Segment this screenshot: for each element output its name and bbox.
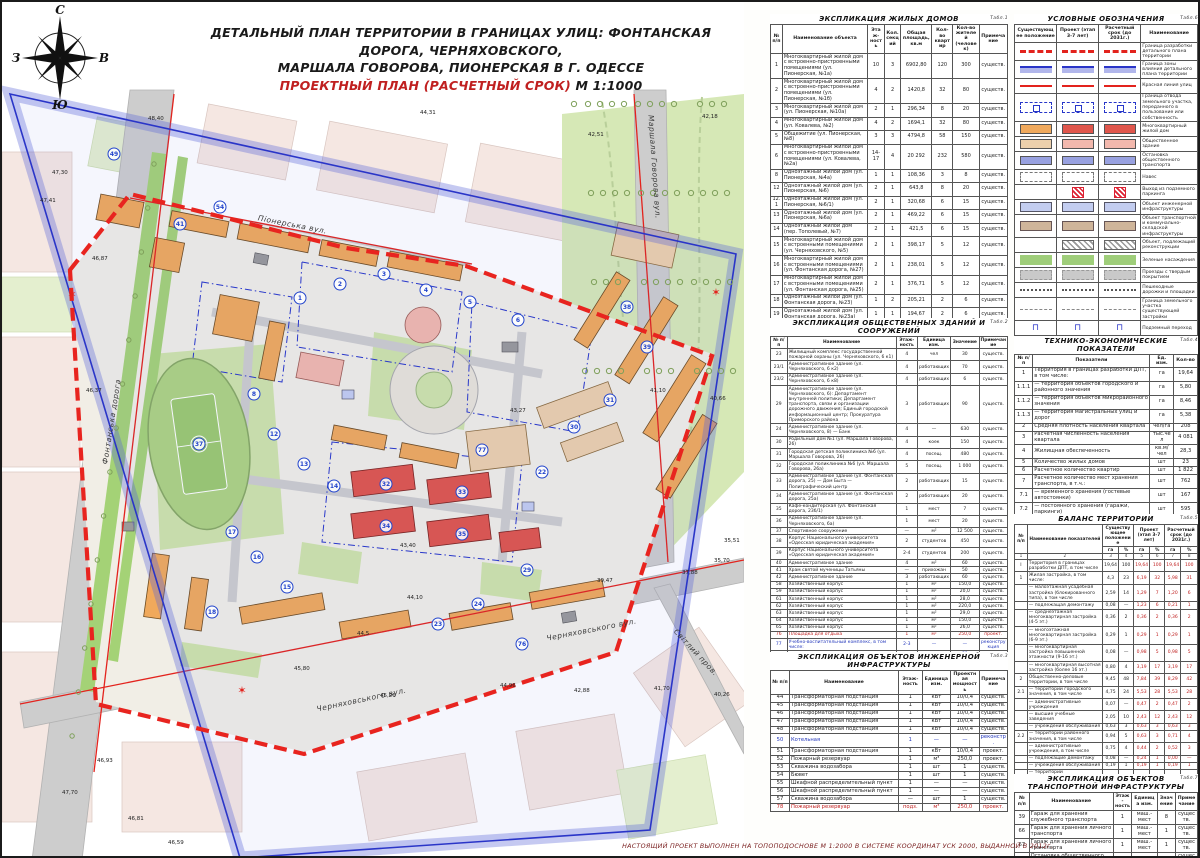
column-header: Наименование [1029, 793, 1113, 811]
legend-swatch-cell [1015, 215, 1057, 238]
table-cell: 3 [1119, 723, 1134, 730]
table-cell: 5 [1181, 644, 1198, 662]
table-cell: 3 [1181, 743, 1198, 755]
table-cell: 1 [898, 702, 922, 710]
table-cell: существ. [979, 275, 1007, 294]
table-cell: 48 [1119, 674, 1134, 686]
table-cell: 643,8 [901, 183, 932, 197]
table-cell: подз. [898, 804, 922, 812]
svg-text:В: В [98, 51, 109, 65]
table-cell: существ. [979, 726, 1007, 734]
table-cell: чел [917, 349, 950, 361]
table-cell: м² [917, 610, 950, 617]
table-cell: Многоквартирный жилой дом с встроенными … [782, 275, 867, 294]
legend-item-name: Зеленые насаждения [1141, 253, 1198, 268]
table-cell: Скважина водозабора [789, 796, 898, 804]
legend-item-name: Граница земельного участка существующей … [1141, 298, 1198, 321]
table-cell: 24 [1119, 686, 1134, 698]
table-cell: 1 [884, 210, 901, 224]
table-cell: Одноэтажный жилой дом (ул. Пионерская, №… [782, 196, 867, 210]
legend-item-name: Проезды с твердым покрытием [1141, 268, 1198, 283]
building-number-label: 39 [643, 344, 651, 351]
table-cell: 28,0 [951, 596, 979, 603]
table-cell: существ. [979, 196, 1007, 210]
table-cell: проект. [979, 631, 1007, 638]
table-cell: 32 [771, 461, 788, 473]
lr-swatch-icon [1104, 85, 1136, 87]
legend-swatch-cell [1099, 170, 1141, 185]
table-cell: Трансформаторная подстанция [789, 710, 898, 718]
table-cell: 8,46 [1174, 395, 1198, 409]
table-cell: маш.-мест [1132, 811, 1158, 825]
table-cell: Городская детская поликлиника №6 (ул. Ма… [787, 449, 896, 461]
table-cell: 37 [771, 528, 788, 535]
table-cell: 0,52 [1165, 743, 1181, 755]
table-cell: га [1150, 381, 1174, 395]
table-cell: 45 [771, 702, 790, 710]
building-number-label: 23 [434, 621, 442, 628]
legend-item-name: Подземный переход [1141, 321, 1198, 336]
table-cell: 5,38 [1174, 409, 1198, 423]
table-tag: Табл.5 [1180, 516, 1198, 521]
legend-column-header: Расчетный срок (до 2031г.) [1099, 25, 1141, 43]
elevation-label: 42,51 [588, 132, 604, 138]
table-cell: 10/0,4 [951, 702, 979, 710]
table-cell: 10/0,4 [951, 748, 979, 756]
table-cell: 4 [868, 117, 885, 131]
project-note: НАСТОЯЩИЙ ПРОЕКТ ВЫПОЛНЕН НА ТОПОПОДОСНО… [550, 843, 1125, 850]
svg-text:✶: ✶ [237, 684, 246, 697]
table-cell: 53 [771, 764, 790, 772]
table-cell: 1420,8 [901, 79, 932, 104]
table-cell: 15 [953, 210, 979, 224]
table-cell: 1 [898, 718, 922, 726]
column-header: № п/п [1015, 355, 1033, 368]
table-cell: 12 [953, 237, 979, 256]
legend-swatch-cell [1099, 268, 1141, 283]
table-cell: 1 [1113, 811, 1131, 825]
table-cell: 1 [898, 734, 922, 748]
table-cell: Трансформаторная подстанция [789, 702, 898, 710]
table-cell: Количество жилых домов [1033, 459, 1150, 467]
table-cell: 12 [1150, 711, 1165, 723]
table-cell: 2 [896, 535, 917, 547]
building-number-label: 34 [382, 523, 390, 530]
column-header: Примечание [1176, 793, 1198, 811]
table-cell: 1 [1157, 825, 1175, 839]
table-cell: 0,19 [1102, 762, 1118, 769]
table-cell: Территория в границах разработки ДПТ, в … [1027, 560, 1102, 572]
table-cell: Административное здание [787, 560, 896, 567]
table-cell: 68 [1015, 853, 1030, 858]
legend-swatch-cell [1057, 43, 1099, 61]
table-cell: га [1150, 395, 1174, 409]
table-cell: Одноэтажный жилой дом (пер. Тополевый, №… [782, 223, 867, 237]
table-cell: 0,08 [1102, 644, 1118, 662]
table-cell: 4794,8 [901, 131, 932, 145]
legend-item-name: Красная линия улиц [1141, 78, 1198, 93]
table-cell: 0,21 [1165, 602, 1181, 609]
table-cell: — территория магистральных улиц и дорог [1033, 409, 1150, 423]
table-cell: 0,36 [1102, 609, 1118, 627]
table-cell: 3 [868, 131, 885, 145]
legend-swatch-cell [1099, 78, 1141, 93]
legend-swatch-cell [1015, 283, 1057, 298]
table-cell: 6 [953, 294, 979, 308]
table-cell: 2 [884, 294, 901, 308]
table-cell: 2 [1181, 699, 1198, 711]
table-cell: 232 [932, 144, 953, 169]
table-cell: существ. [979, 610, 1007, 617]
table-cell: 1 [884, 183, 901, 197]
table-cell: 60 [951, 574, 979, 581]
legend-swatch-cell [1057, 185, 1099, 200]
column-header: № п/п [771, 25, 783, 54]
table-cell: — территория объектов микрорайонного зна… [1033, 395, 1150, 409]
legend-swatch-cell [1015, 321, 1057, 336]
table-cell: 2 [868, 256, 885, 275]
table-cell: 1 [898, 726, 922, 734]
table-cell: — учреждения обслуживания [1027, 762, 1102, 769]
table-cell: 14-17 [868, 144, 885, 169]
table-cell: маш.-мест [1132, 839, 1158, 853]
table-cell: существ. [979, 588, 1007, 595]
legend-swatch-cell [1015, 200, 1057, 215]
column-header: Единица изм. [917, 337, 950, 349]
legend-swatch-cell [1099, 283, 1141, 298]
table-cell: 6 [932, 210, 953, 224]
legend-swatch-cell [1099, 238, 1141, 253]
table-cell: существ. [979, 349, 1007, 361]
column-subheader: % [1150, 547, 1165, 554]
table-cell: 20,0 [951, 588, 979, 595]
table-cell: 1 [1113, 853, 1131, 858]
tt-swatch-icon [1104, 221, 1136, 231]
table-cell [1015, 711, 1028, 723]
table-cell: существ. [979, 210, 1007, 224]
lrd-swatch-icon [1062, 50, 1094, 53]
table-cell: м² [917, 596, 950, 603]
table-cell: 58 [771, 581, 788, 588]
table-cell: 40 [771, 560, 788, 567]
table-cell: 1 [951, 772, 979, 780]
legend-item-name: Общественное здание [1141, 137, 1198, 152]
table-cell: Административное здание (ул. Фонтанская … [787, 491, 896, 503]
building-number-label: 38 [623, 304, 631, 311]
legend-swatch-cell [1099, 43, 1141, 61]
table-cell: 5,53 [1133, 686, 1149, 698]
legend-column-header: Наименование [1141, 25, 1198, 43]
table-cell: существ. [979, 503, 1007, 515]
table-cell: 6 [771, 144, 783, 169]
legend-swatch-cell [1099, 200, 1141, 215]
table-cell: 4 [771, 117, 783, 131]
table-cell: 10 [1119, 711, 1134, 723]
table-cell [1015, 755, 1028, 762]
column-header: Кол-во [1174, 355, 1198, 368]
table-cell: 18 [771, 294, 783, 308]
table-cell: существ. [979, 183, 1007, 197]
table-title: ЭКСПЛИКАЦИЯ ОБЪЕКТОВ ТРАНСПОРТНОЙ ИНФРАС… [1028, 775, 1185, 791]
table-cell: — [951, 639, 979, 651]
lr-swatch-icon [1020, 85, 1052, 87]
table-cell: существ. [979, 294, 1007, 308]
lr-swatch-icon [1062, 85, 1094, 87]
sb-swatch-icon [1104, 156, 1136, 165]
table-cell: 0,36 [1165, 609, 1181, 627]
plan-title-line1: ДЕТАЛЬНЫЙ ПЛАН ТЕРРИТОРИИ В ГРАНИЦАХ УЛИ… [182, 24, 740, 59]
table-cell: 150,0 [951, 617, 979, 624]
legend-column-header: Проект (этап 3-7 лет) [1057, 25, 1099, 43]
table-cell: 19,64 [1174, 367, 1198, 381]
table-cell: Кафе-кондитерская (ул. Фонтанская дорога… [787, 503, 896, 515]
bb-swatch-icon [1020, 66, 1052, 73]
elevation-label: 42,18 [702, 114, 718, 120]
table-cell: 7 [1150, 584, 1165, 602]
building-number-label: 35 [458, 531, 466, 538]
pg-swatch-icon [1104, 309, 1136, 310]
table-cell: 4 [896, 560, 917, 567]
legend-swatch-cell [1057, 215, 1099, 238]
table-cell: шт [922, 764, 950, 772]
legend-item-name: Многоквартирный жилой дом [1141, 122, 1198, 137]
table-cell: 17 [771, 275, 783, 294]
table-cell: 1 [898, 788, 922, 796]
table-cell: 0,24 [1133, 755, 1149, 762]
legend-swatch-cell [1057, 283, 1099, 298]
column-header: Показатели [1033, 355, 1150, 368]
table-cell: 80 [953, 117, 979, 131]
table-cell: 15 [953, 223, 979, 237]
table-cell: 7,84 [1133, 674, 1149, 686]
table-cell: 205,21 [901, 294, 932, 308]
table-cell: 80 [953, 79, 979, 104]
table-cell: посещ. [917, 461, 950, 473]
table-cell: 3,19 [1133, 662, 1149, 674]
table-cell: 50 [951, 567, 979, 574]
table-cell: 1.1.2 [1015, 395, 1033, 409]
table-cell: мест [917, 503, 950, 515]
table-cell: существ. [979, 581, 1007, 588]
column-header: Кол. секций [884, 25, 901, 54]
table-cell: 1 [1015, 572, 1028, 584]
table-cell: 1 [868, 294, 885, 308]
table-cell: 1.1.3 [1015, 409, 1033, 423]
table-cell: 2 [868, 275, 885, 294]
table-cell: Административное здание (ул. Черняховско… [787, 515, 896, 527]
table-cell: 1 [896, 581, 917, 588]
table-cell: 1 [1181, 762, 1198, 769]
table-cell: кВт [922, 702, 950, 710]
column-header: Примечание [979, 671, 1007, 695]
elevation-label: 40,66 [710, 396, 726, 402]
table-cell: 0,44 [1133, 743, 1149, 755]
table-cell: 1 [896, 610, 917, 617]
building-number-label: 41 [176, 221, 184, 228]
table-cell: существ. [979, 361, 1007, 373]
table-cell: Административное здание (ул. Черняховско… [787, 424, 896, 436]
table-cell: 2 [884, 117, 901, 131]
table-cell: 100 [1119, 560, 1134, 572]
table-cell: кВт [922, 710, 950, 718]
table-cell: Трансформаторная подстанция [789, 718, 898, 726]
legend-item-name: Остановка общественного транспорта [1141, 152, 1198, 170]
table-cell: — [898, 796, 922, 804]
table-cell: Родильный дом №1 (ул. Маршала Говорова, … [787, 436, 896, 448]
table-cell: 2,05 [1102, 711, 1118, 723]
table-cell: 23/2 [771, 373, 788, 385]
column-header: Проект (этап 3-7 лет) [1133, 525, 1164, 547]
table-cell: м² [917, 528, 950, 535]
table-cell: 300 [953, 54, 979, 79]
table-cell: — высшие учебные заведения [1027, 711, 1102, 723]
elevation-label: 46,93 [97, 758, 113, 764]
table-cell: кВт [922, 748, 950, 756]
legend-swatch-cell [1099, 215, 1141, 238]
title-block: ДЕТАЛЬНЫЙ ПЛАН ТЕРРИТОРИИ В ГРАНИЦАХ УЛИ… [182, 24, 740, 94]
table-cell: работающих [917, 386, 950, 424]
table-cell: — [1119, 699, 1134, 711]
bpk-swatch-icon [1062, 139, 1094, 149]
table-cell: существ. [979, 560, 1007, 567]
elevation-label: 44,96 [500, 683, 516, 689]
table-cell: 250,0 [951, 804, 979, 812]
table-cell: 1 [1181, 627, 1198, 645]
elevation-label: 43,27 [510, 408, 526, 414]
table-cell: чел/га [1150, 423, 1174, 431]
legend-swatch-cell [1057, 321, 1099, 336]
legend-swatch-cell [1099, 61, 1141, 79]
table-cell: 250,0 [951, 631, 979, 638]
table-cell: 320,68 [901, 196, 932, 210]
table-cell: 0,63 [1133, 723, 1149, 730]
table-cell: 0,71 [1165, 730, 1181, 742]
up-swatch-icon [1020, 323, 1052, 333]
table-cell: 2 [868, 196, 885, 210]
table-cell: 0,63 [1102, 723, 1118, 730]
table-cell: 3 [1150, 730, 1165, 742]
pd-swatch-icon [1104, 289, 1136, 291]
table-cell: кВт [922, 694, 950, 702]
building-number-label: 6 [516, 317, 520, 324]
table-cell: 208 [1174, 423, 1198, 431]
table-title: ТЕХНИКО-ЭКОНОМИЧЕСКИЕ ПОКАЗАТЕЛИ [1044, 337, 1167, 353]
building-number-label: 3 [382, 271, 386, 278]
table-cell: 4 [1119, 662, 1134, 674]
table-cell: 46 [771, 710, 790, 718]
table-cell: кв.м/чел [1150, 445, 1174, 459]
table-cell: 6902,80 [901, 54, 932, 79]
table-cell: Хозяйственный корпус [787, 596, 896, 603]
table-cell: 5 [932, 256, 953, 275]
table-cell: 36 [771, 515, 788, 527]
legend-swatch-cell [1057, 253, 1099, 268]
table-cell: 8,29 [1165, 674, 1181, 686]
table-cell: 10/0,4 [951, 726, 979, 734]
table-cell: Одноэтажный жилой дом (ул. Пионерская, №… [782, 169, 867, 183]
table-cell: Хозяйственный корпус [787, 624, 896, 631]
bb-swatch-icon [1062, 66, 1094, 73]
column-header: Единица изм. [1132, 793, 1158, 811]
building-number-label: 22 [538, 469, 546, 476]
table-title: ЭКСПЛИКАЦИЯ ОБЪЕКТОВ ИНЖЕНЕРНОЙ ИНФРАСТР… [798, 653, 981, 669]
building-number-label: 13 [300, 461, 308, 468]
table-cell: 5 [896, 461, 917, 473]
sb-swatch-icon [1020, 156, 1052, 165]
building-number-label: 29 [523, 567, 531, 574]
table-cell: Расчетное количество квартир [1033, 467, 1150, 475]
column-header: Этаж- ность [896, 337, 917, 349]
table-cell: существ. [979, 491, 1007, 503]
column-header: Примечание [979, 337, 1007, 349]
table-cell: 20 [951, 515, 979, 527]
building-number-label: 49 [110, 151, 118, 158]
table-cell: 66 [1015, 825, 1030, 839]
table-cell: 44 [771, 694, 790, 702]
table-cell: 5 [932, 275, 953, 294]
table-cell: 0,08 [1102, 602, 1118, 609]
legend-swatch-cell [1099, 152, 1141, 170]
lrd-swatch-icon [1104, 50, 1136, 53]
column-header: Ед. изм. [1150, 355, 1174, 368]
elevation-label: 47,30 [52, 170, 68, 176]
column-header: Расчетный срок (до 2031г.) [1165, 525, 1198, 547]
table-cell: 296,34 [901, 104, 932, 118]
legend-swatch-cell [1099, 185, 1141, 200]
building-number-label: 31 [606, 397, 614, 404]
table-cell: работающих [917, 574, 950, 581]
table-cell: 15 [951, 473, 979, 491]
table-cell: 51 [771, 748, 790, 756]
table-cell: кВт [922, 726, 950, 734]
table-cell: Административное здание [787, 574, 896, 581]
table-cell: — административные учреждения, в том чис… [1027, 743, 1102, 755]
table-cell: — [917, 639, 950, 651]
table-cell: Одноэтажный жилой дом (ул. Фонтанская до… [782, 294, 867, 308]
table-cell: 0,19 [1165, 762, 1181, 769]
table-cell: 6,19 [1133, 572, 1149, 584]
gg-swatch-icon [1104, 255, 1136, 265]
table-cell: Гараж для хранения личного транспорта [1029, 825, 1113, 839]
table-cell: Площадка для отдыха [787, 631, 896, 638]
column-header: Существующее положение [1102, 525, 1133, 547]
table-cell: 1 [896, 624, 917, 631]
table-cell: — [917, 424, 950, 436]
table-cell: 10/0,4 [951, 718, 979, 726]
table-cell: Одноэтажный жилой дом (ул. Пионерская, №… [782, 210, 867, 224]
elevation-label: 44,31 [420, 110, 436, 116]
table-cell: 58 [932, 131, 953, 145]
sb-swatch-icon [1062, 156, 1094, 165]
table-cell: 0,63 [1133, 730, 1149, 742]
table-tag: Табл.7 [1180, 776, 1198, 781]
legend-title: УСЛОВНЫЕ ОБОЗНАЧЕНИЯ [1048, 15, 1165, 23]
legend-swatch-cell [1015, 93, 1057, 121]
table-cell: Административное здание (ул. Фонтанская … [787, 473, 896, 491]
table-cell: прихожан [917, 567, 950, 574]
table-cell: 61 [771, 596, 788, 603]
table-cell: 70 [951, 361, 979, 373]
table-cell: 0,00 [1165, 755, 1181, 762]
table-cell: 2 [868, 183, 885, 197]
table-cell: 76 [771, 631, 788, 638]
table-cell: Многоквартирный жилой дом с встроенно-пр… [782, 54, 867, 79]
table-cell: Хозяйственный корпус [787, 588, 896, 595]
table-cell: существ. [979, 449, 1007, 461]
table-cell: шт [922, 772, 950, 780]
column-header: Значение [951, 337, 979, 349]
column-header: Примечание [979, 25, 1007, 54]
